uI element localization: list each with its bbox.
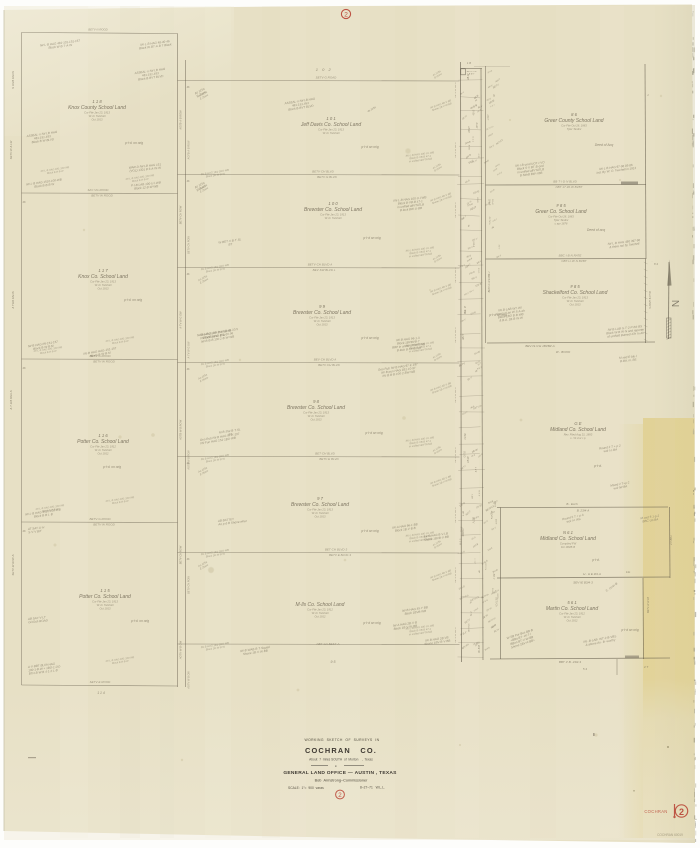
svg-text:Midland Co. School Land: Midland Co. School Land (540, 536, 596, 542)
svg-text:A·TV·W·G OW: A·TV·W·G OW (179, 311, 183, 330)
svg-text:1 1 8: 1 1 8 (92, 99, 102, 104)
svg-text:BEV·CH BLVD A: BEV·CH BLVD A (314, 357, 337, 361)
svg-text:BETV·CH BLVD: BETV·CH BLVD (312, 169, 335, 173)
svg-text:N: N (669, 300, 680, 307)
svg-text:BETV·C·W E BBL·I: BETV·C·W E BBL·I (488, 271, 491, 292)
svg-text:BETV·W LW·B: BETV·W LW·B (455, 267, 457, 283)
svg-text:Potter Co. School Land: Potter Co. School Land (77, 439, 129, 445)
svg-text:BETV·CH ROW: BETV·CH ROW (179, 205, 183, 224)
svg-text:S·KBVH B·TH·B: S·KBVH B·TH·B (649, 291, 652, 309)
svg-text:5 6 1: 5 6 1 (567, 600, 576, 605)
svg-text:9 7: 9 7 (317, 496, 323, 501)
svg-text:Oct 1912: Oct 1912 (315, 614, 326, 618)
svg-text:M·lls Co. School Land: M·lls Co. School Land (296, 602, 345, 608)
svg-text:Oct 1913: Oct 1913 (98, 286, 109, 290)
svg-text:W. D. Twichell: W. D. Twichell (95, 283, 112, 287)
svg-text:BETV·CH ROW: BETV·CH ROW (188, 235, 191, 253)
svg-text:GENERAL LAND OFFICE — AUSTIN ,: GENERAL LAND OFFICE — AUSTIN , TEXAS (283, 770, 397, 776)
svg-text:Brewster Co. School Land: Brewster Co. School Land (291, 502, 349, 508)
svg-text:Cor File Jan 23, 1913: Cor File Jan 23, 1913 (90, 280, 116, 284)
svg-text:W·B·B: W·B·B (477, 645, 481, 653)
svg-text:Cor File Oct 28, 1883: Cor File Oct 28, 1883 (548, 215, 574, 219)
svg-text:1BVB: 1BVB (476, 197, 478, 203)
svg-text:BET·CH BLVD: BET·CH BLVD (315, 451, 336, 455)
svg-text:BETV·W ROOD: BETV·W ROOD (93, 522, 115, 526)
svg-text:BETV·W LW·B: BETV·W LW·B (455, 567, 457, 583)
svg-text:Cor File Jan 23, 1913: Cor File Jan 23, 1913 (92, 600, 118, 604)
svg-text:BETV·N ROOD: BETV·N ROOD (88, 27, 107, 31)
svg-text:p·t·d.: p·t·d. (591, 558, 600, 562)
svg-text:Greer County School Land: Greer County School Land (544, 118, 603, 124)
svg-text:Oct 1913: Oct 1913 (315, 514, 326, 518)
svg-text:Cor File Jan 23, 1913: Cor File Jan 23, 1913 (562, 296, 588, 300)
svg-text:Complied FW: Complied FW (560, 542, 577, 546)
svg-text:About 7 miles SOUTH of Mor: About 7 miles SOUTH of Morton , Texas (309, 758, 373, 762)
svg-text:BB·V: BB·V (492, 574, 495, 580)
svg-text:100·B: 100·B (494, 501, 496, 507)
svg-text:BETV·G BLVD: BETV·G BLVD (317, 175, 338, 179)
svg-text:9 9: 9 9 (319, 304, 325, 309)
svg-text:Cor File Jan 23, 1912: Cor File Jan 23, 1912 (307, 608, 333, 612)
svg-text:BETVCh: BETVCh (468, 623, 470, 632)
svg-text:BLVD: BLVD (477, 268, 479, 274)
svg-text:p·t·d on orig: p·t·d on orig (360, 529, 378, 533)
svg-text:9 8: 9 8 (313, 399, 319, 404)
svg-text:Rev. Filed Aug 31, 1883: Rev. Filed Aug 31, 1883 (564, 433, 593, 437)
svg-text:Cor File Oct 28, 1883: Cor File Oct 28, 1883 (561, 124, 587, 128)
svg-text:p·t·d on orig: p·t·d on orig (362, 621, 380, 625)
svg-text:p·t·d. on orig: p·t·d. on orig (124, 141, 143, 145)
svg-text:100·B: 100·B (469, 144, 471, 150)
svg-text:Jeff Davis Co. School Land: Jeff Davis Co. School Land (300, 122, 362, 128)
svg-text:Tyler Tardini: Tyler Tardini (554, 218, 569, 222)
svg-text:H·. & E 3I4·A: H·. & E 3I4·A (583, 572, 601, 576)
svg-text:BET·CH BLVD·3: BET·CH BLVD·3 (325, 547, 348, 551)
svg-text:BETVCh: BETVCh (495, 597, 498, 607)
svg-text:ABVT: ABVT (468, 126, 471, 134)
svg-text:BBC·I·B·N RATE: BBC·I·B·N RATE (559, 253, 583, 257)
svg-text:BETV·W W·LB: BETV·W W·LB (647, 597, 650, 613)
svg-text:2: 2 (338, 792, 342, 799)
svg-text:W. D. Twichell: W. D. Twichell (312, 611, 329, 615)
svg-text:p·t·d. on orig: p·t·d. on orig (130, 619, 149, 623)
svg-text:BETV: BETV (463, 433, 466, 440)
svg-text:S RIVA KALIS: S RIVA KALIS (11, 71, 15, 89)
svg-text:1 0 1: 1 0 1 (326, 116, 335, 121)
svg-text:1BVB: 1BVB (477, 122, 479, 128)
svg-text:Cor File Jan 23, 1913: Cor File Jan 23, 1913 (307, 508, 333, 512)
svg-text:BETVCh: BETVCh (488, 217, 490, 226)
svg-text:Cor File Jan 23, 1913: Cor File Jan 23, 1913 (320, 213, 346, 217)
svg-text:AOTB·W·B ROW: AOTB·W·B ROW (188, 450, 191, 471)
svg-text:AOTV·W·B OW: AOTV·W·B OW (179, 640, 183, 660)
svg-text:SCALE: 1″= 900 varas: SCALE: 1″= 900 varas (288, 786, 324, 790)
svg-text:BETV·E BLVD: BETV·E BLVD (319, 457, 339, 461)
svg-text:BETV·W LW·B: BETV·W LW·B (455, 387, 457, 403)
svg-text:p·t·d on orig: p·t·d on orig (364, 431, 382, 435)
svg-text:Cor File Jan 23, 1912: Cor File Jan 23, 1912 (90, 445, 116, 449)
svg-text:100·B: 100·B (472, 241, 474, 247)
svg-text:Oct 1913: Oct 1913 (100, 606, 111, 610)
svg-text:Oct 1912: Oct 1912 (567, 618, 578, 622)
svg-text:AOTV·W·B OW: AOTV·W·B OW (188, 671, 191, 690)
svg-text:8 6: 8 6 (571, 112, 577, 117)
svg-text:BETV·W LW·B: BETV·W LW·B (455, 507, 457, 523)
svg-text:BETV·W ROOD: BETV·W ROOD (91, 193, 113, 197)
svg-text:ABVT: ABVT (486, 113, 489, 121)
svg-text:COCHRAN 60019: COCHRAN 60019 (657, 833, 683, 837)
svg-text:W. D. Twichell: W. D. Twichell (308, 414, 325, 418)
svg-text:BB·V: BB·V (472, 493, 474, 498)
svg-text:Fol 1BVB·B: Fol 1BVB·B (561, 545, 575, 549)
svg-text:Greer Co. School Land: Greer Co. School Land (535, 209, 586, 215)
svg-text:BETV·CH ROW: BETV·CH ROW (179, 545, 183, 564)
svg-text:A·TV·W·G OW: A·TV·W·G OW (188, 341, 191, 359)
svg-text:5 4: 5 4 (583, 667, 588, 671)
svg-text:2: 2 (679, 807, 684, 817)
svg-text:BETV·G ROOD: BETV·G ROOD (89, 517, 111, 521)
svg-text:ABVT: ABVT (462, 333, 465, 341)
svg-text:BB·T·I·D·N BLVD: BB·T·I·D·N BLVD (553, 179, 577, 183)
svg-text:Shackelford Co. School Land: Shackelford Co. School Land (543, 290, 608, 296)
svg-text:B·. Ecch: B·. Ecch (566, 502, 578, 506)
svg-text:L. W·d or·l·p: L. W·d or·l·p (571, 436, 586, 440)
svg-text:W. D. Twichell: W. D. Twichell (567, 299, 584, 303)
svg-text:AOTB·A·B ROW: AOTB·A·B ROW (179, 110, 183, 131)
svg-text:SETV·E ROOD: SETV·E ROOD (90, 680, 112, 684)
svg-text:BETV·W LW·B: BETV·W LW·B (455, 447, 457, 463)
svg-text:p·t·d on orig: p·t·d on orig (360, 336, 378, 340)
svg-text:1 1 6: 1 1 6 (98, 433, 108, 438)
svg-text:BETV·CH ROW: BETV·CH ROW (188, 575, 191, 593)
svg-text:A·T·WA BALLS: A·T·WA BALLS (9, 390, 13, 410)
svg-text:Oct 1912: Oct 1912 (98, 451, 109, 455)
svg-text:NBT·CH BEST·A: NBT·CH BEST·A (316, 642, 339, 646)
svg-text:B. 23I4·A: B. 23I4·A (577, 509, 590, 513)
svg-text:p·t·d. on orig: p·t·d. on orig (102, 465, 121, 469)
svg-text:·: · (652, 259, 653, 263)
svg-text:A·B·T: A·B·T (474, 466, 477, 473)
svg-text:BETV·W ROOD: BETV·W ROOD (93, 359, 115, 363)
svg-text:AOTB·W·B ROW: AOTB·W·B ROW (179, 419, 183, 441)
svg-text:BEV·SW BLVD L: BEV·SW BLVD L (313, 268, 336, 272)
svg-text:SHvB: SHvB (488, 199, 491, 206)
svg-text:W·B·B: W·B·B (471, 136, 473, 143)
svg-text:1B·W: 1B·W (461, 526, 463, 533)
svg-text:Brewster Co. School Land: Brewster Co. School Land (287, 405, 345, 411)
svg-text:BETV·E BLVD·3: BETV·E BLVD·3 (329, 553, 351, 557)
svg-text:Oct 1913: Oct 1913 (570, 302, 581, 306)
svg-text:# 8 5: # 8 5 (570, 284, 580, 289)
svg-text:W. D. Twichell: W. D. Twichell (97, 603, 114, 607)
svg-text:A TWA KALIS: A TWA KALIS (11, 291, 15, 309)
svg-text:W. D. Twichell: W. D. Twichell (564, 615, 581, 619)
svg-text:Bk·V: Bk·V (471, 611, 473, 616)
svg-text:1B·W: 1B·W (467, 73, 470, 80)
svg-text:W·. BOOO: W·. BOOO (556, 350, 571, 354)
svg-text:BETV·W LW·B: BETV·W LW·B (455, 82, 457, 98)
svg-text:NBT·LI·W·N BVBT: NBT·LI·W·N BVBT (561, 259, 587, 263)
svg-text:N 6 1: N 6 1 (563, 530, 573, 535)
svg-text:Cor File Jan 23, 1913: Cor File Jan 23, 1913 (303, 411, 329, 415)
svg-text:W. D. Twichell: W. D. Twichell (325, 216, 342, 220)
svg-text:AOTB·A·B ROW: AOTB·A·B ROW (188, 140, 191, 160)
svg-text:SAY·VG ROOD: SAY·VG ROOD (88, 188, 110, 192)
svg-text:BETVCh: BETVCh (484, 562, 486, 569)
svg-text:1 1 4: 1 1 4 (97, 691, 105, 695)
svg-text:WORKING SKETCH OF SURVEYS: WORKING SKETCH OF SURVEYS IN (305, 738, 380, 742)
svg-text:BBT·V·B· 23I4·3: BBT·V·B· 23I4·3 (559, 660, 582, 664)
svg-text:Bk·V: Bk·V (478, 153, 480, 158)
svg-text:BETV·CH BLVD: BETV·CH BLVD (318, 363, 341, 367)
svg-text:Cor File Jan 23, 1913: Cor File Jan 23, 1913 (318, 128, 344, 132)
svg-text:Oct 1913: Oct 1913 (311, 417, 322, 421)
svg-text:Knox County School Land: Knox County School Land (68, 105, 126, 111)
svg-text:BETV·W LW·B: BETV·W LW·B (455, 202, 457, 218)
svg-text:Martin Co. School Land: Martin Co. School Land (546, 606, 598, 612)
svg-text:SHvB: SHvB (491, 199, 493, 205)
svg-text:Cor File Jan 23, 1913: Cor File Jan 23, 1913 (84, 111, 110, 115)
svg-text:SEV·IE B3I4·3: SEV·IE B3I4·3 (573, 581, 593, 585)
svg-text:Bk·V: Bk·V (461, 511, 463, 517)
svg-text:W. D. Twichell: W. D. Twichell (95, 448, 112, 452)
svg-text:W. D. Twichell: W. D. Twichell (323, 131, 340, 135)
svg-text:COCHRAN: COCHRAN (644, 809, 667, 814)
svg-text:1 1 5: 1 1 5 (100, 588, 110, 593)
svg-text:BETV: BETV (475, 558, 477, 564)
svg-text:p·t·d on orig: p·t·d on orig (360, 145, 378, 149)
svg-text:BETV·W LW·B: BETV·W LW·B (455, 627, 457, 643)
svg-text:p·t·d. on orig: p·t·d. on orig (123, 298, 142, 302)
svg-text:W. D. Twichell: W. D. Twichell (312, 511, 329, 515)
svg-text:Bob Armstrong–Commissioner: Bob Armstrong–Commissioner (315, 779, 368, 783)
svg-text:SETV·W RVW·A: SETV·W RVW·A (11, 554, 15, 575)
svg-text:A·B·T: A·B·T (494, 518, 497, 525)
svg-text:Tyler Tardini: Tyler Tardini (567, 127, 582, 131)
svg-text:Brewster Co. School Land: Brewster Co. School Land (293, 310, 351, 316)
svg-text:COCHRAN CO.: COCHRAN CO. (305, 746, 377, 755)
svg-text:Cor File Jan 23, 1913: Cor File Jan 23, 1913 (309, 316, 335, 320)
svg-text:2: 2 (344, 11, 348, 18)
svg-text:14o: 14o (626, 570, 631, 574)
svg-text:BLVD: BLVD (463, 451, 466, 457)
svg-text:1 0 2: 1 0 2 (316, 67, 332, 72)
svg-text:9 5: 9 5 (331, 660, 336, 664)
svg-text:p·t·d on orig: p·t·d on orig (620, 628, 638, 632)
svg-text:BETV·W LW·B: BETV·W LW·B (455, 327, 457, 343)
svg-text:W. D. Twichell: W. D. Twichell (89, 114, 106, 118)
svg-text:Oct 1913: Oct 1913 (92, 117, 103, 121)
svg-text:c apr 1878: c apr 1878 (555, 221, 568, 225)
svg-text:1 1 7: 1 1 7 (98, 268, 108, 273)
svg-text:BEV·IS·N E 1BVBZ·A: BEV·IS·N E 1BVBZ·A (525, 344, 554, 348)
svg-text:NBT 17·30·W BVBT: NBT 17·30·W BVBT (555, 185, 583, 189)
svg-text:W·B·B: W·B·B (461, 538, 463, 545)
svg-text:Cor File Jan 23, 1912: Cor File Jan 23, 1912 (559, 612, 585, 616)
svg-text:BB·V: BB·V (497, 245, 499, 250)
svg-text:4B·B: 4B·B (471, 109, 475, 115)
svg-text:BETV·W A·LW: BETV·W A·LW (9, 140, 13, 159)
svg-text:p·t·d.: p·t·d. (593, 464, 602, 468)
svg-text:BETV·CH BLVD A: BETV·CH BLVD A (308, 262, 332, 266)
svg-text:Knox Co. School Land: Knox Co. School Land (78, 274, 128, 280)
svg-text:Midland Co. School Land: Midland Co. School Land (550, 427, 606, 433)
svg-text:SETV·G ROAD: SETV·G ROAD (316, 75, 338, 79)
svg-text:# 8 5: # 8 5 (556, 203, 566, 208)
svg-text:8 4: 8 4 (654, 262, 658, 266)
svg-text:G E: G E (574, 421, 581, 426)
svg-text:BETV·W LW·B: BETV·W LW·B (455, 142, 457, 158)
svg-text:Potter Co. School Land: Potter Co. School Land (79, 594, 131, 600)
svg-text:W. D. Twichell: W. D. Twichell (314, 319, 331, 323)
svg-text:p·t·d on orig: p·t·d on orig (362, 236, 380, 240)
svg-text:1 B: 1 B (467, 61, 471, 65)
svg-text:Brewster Co. School Land: Brewster Co. School Land (304, 207, 362, 213)
svg-text:1 0 0: 1 0 0 (328, 201, 338, 206)
svg-text:Blk. V: Blk. V (463, 305, 467, 314)
svg-text:in: in (335, 764, 338, 768)
svg-text:2·V·BB·L: 2·V·BB·L (670, 534, 673, 546)
svg-text:W·B·B: W·B·B (477, 490, 479, 497)
svg-text:8–27–71 W.L.L.: 8–27–71 W.L.L. (360, 786, 385, 790)
svg-text:Deed of Acq: Deed of Acq (595, 143, 614, 147)
svg-text:Deed of acq: Deed of acq (587, 228, 605, 232)
svg-text:Oct 1913: Oct 1913 (317, 322, 328, 326)
